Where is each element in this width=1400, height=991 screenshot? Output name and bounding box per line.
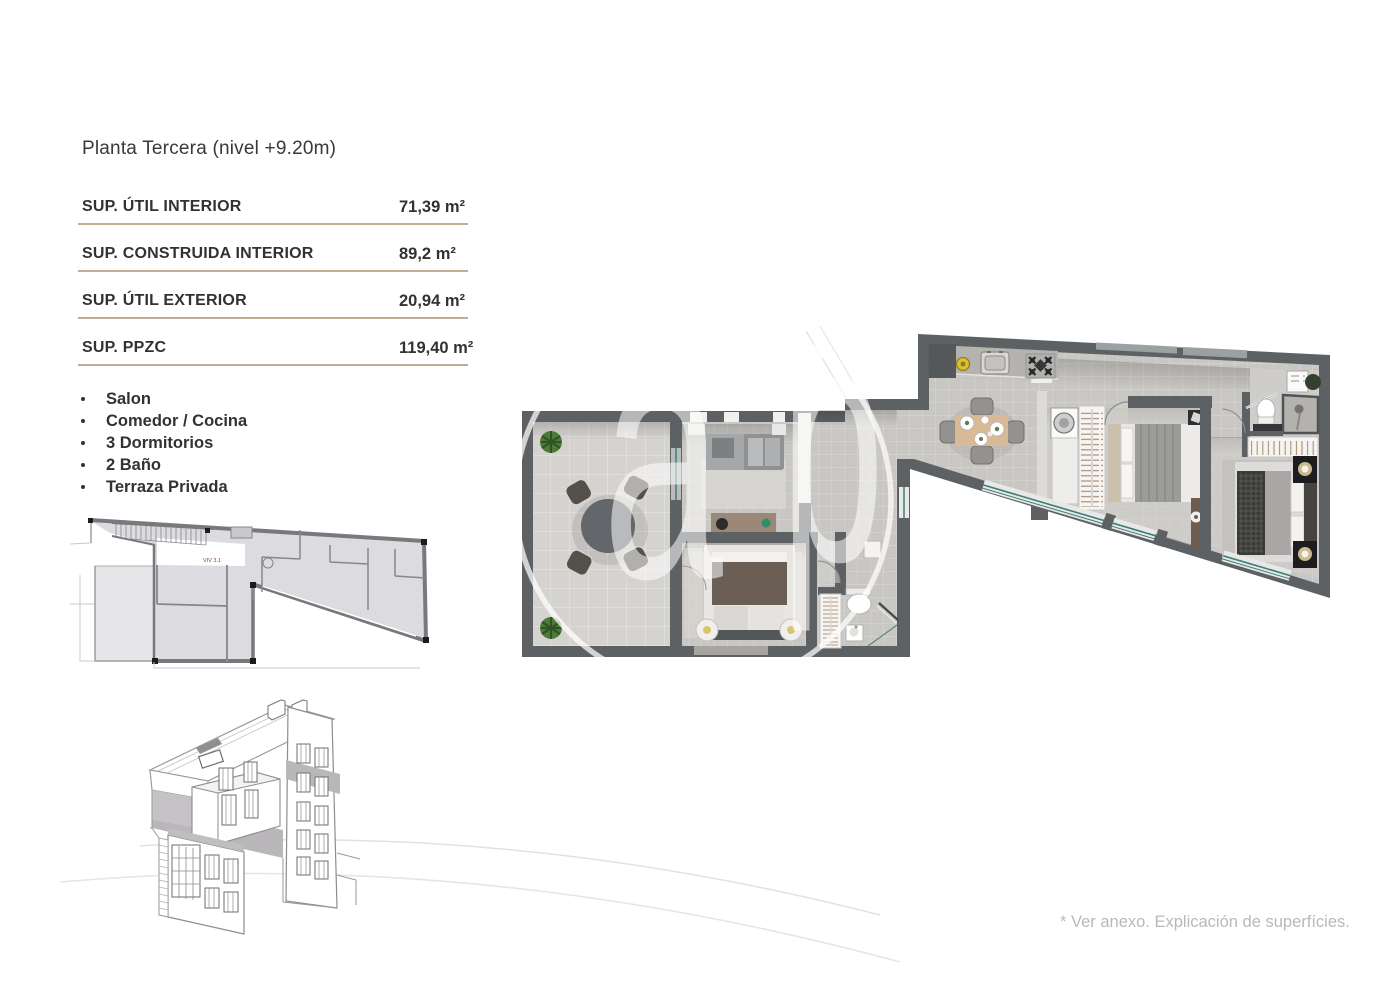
svg-text:VIV 3.1: VIV 3.1 <box>203 558 221 564</box>
svg-text:p: p <box>780 254 884 634</box>
svg-text:a: a <box>602 256 724 653</box>
